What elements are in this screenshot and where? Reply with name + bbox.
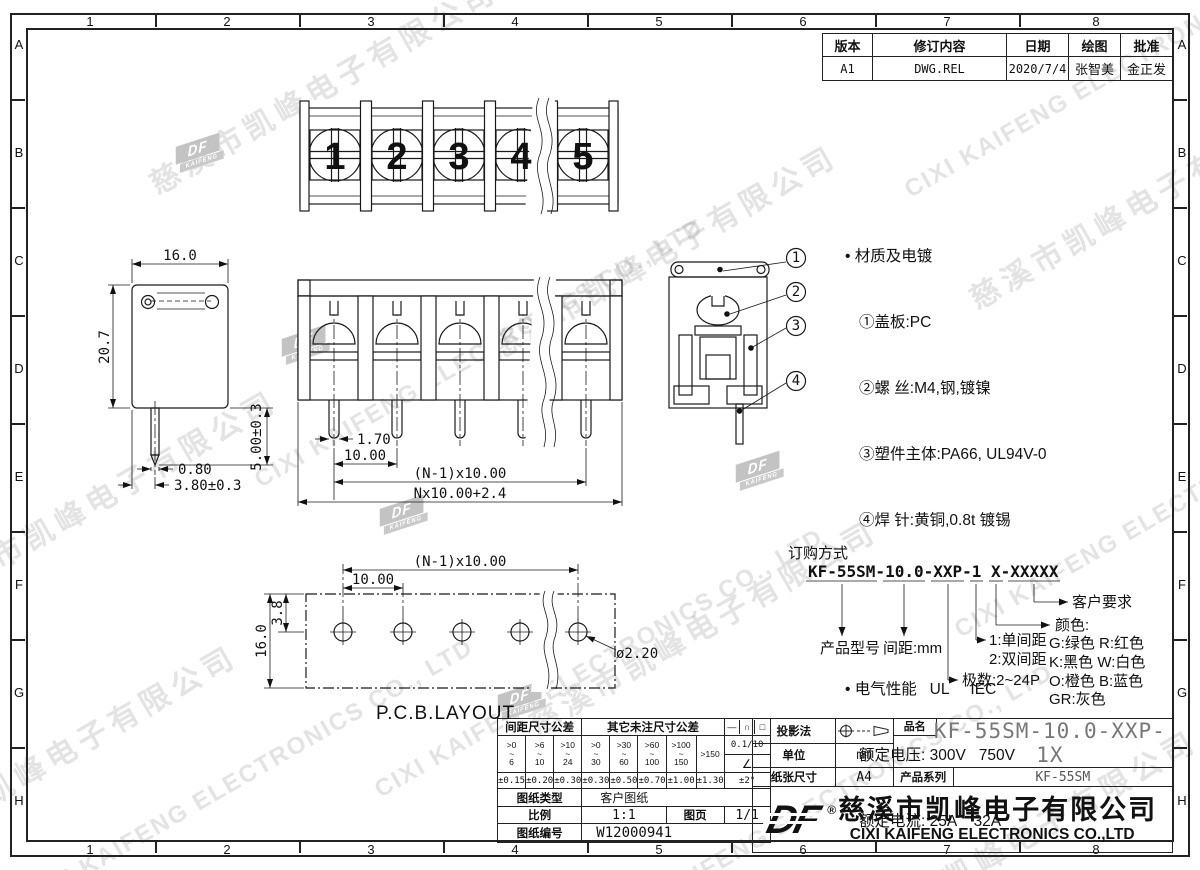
zone-row: B xyxy=(11,145,27,160)
tolerance-value: ±1.30 xyxy=(696,773,724,789)
rev-header: 日期 xyxy=(1007,34,1069,57)
unit-label: 单位 xyxy=(753,743,836,768)
flatness-symbol: — xyxy=(725,720,740,734)
zone-col: 7 xyxy=(939,14,955,29)
unit-value: mm xyxy=(835,743,893,768)
drawing-number-label: 图纸编号 xyxy=(498,824,582,843)
zone-row: A xyxy=(1174,37,1190,52)
page-label: 图页 xyxy=(666,807,724,824)
tolerance-value: ±0.50 xyxy=(610,773,638,789)
title-block: 间距尺寸公差 其它未注尺寸公差 — ∩ □ >0 ~ 6 >6 ~ 10 >10… xyxy=(497,718,1173,840)
rev-header: 版本 xyxy=(823,34,873,57)
spec-line: ③塑件主体:PA66, UL94V-0 xyxy=(845,444,1185,466)
zone-col: 3 xyxy=(363,842,379,857)
range-cell: >100 ~ 150 xyxy=(666,736,696,773)
series-value: KF-55SM xyxy=(953,768,1172,787)
range-cell: >0 ~ 30 xyxy=(582,736,610,773)
tolerance-other-header: 其它未注尺寸公差 xyxy=(582,719,724,736)
rev-approved-by: 金正发 xyxy=(1121,57,1173,81)
range-cell: >150 xyxy=(696,736,724,773)
zone-row: F xyxy=(11,577,27,592)
series-label: 产品系列 xyxy=(893,768,953,787)
tolerance-value: ±0.15 xyxy=(498,773,526,789)
title-info-table: 投影法 品名 KF-55SM-10.0-XXP-1X xyxy=(752,718,1173,853)
zone-col: 3 xyxy=(363,14,379,29)
range-cell: >0 ~ 6 xyxy=(498,736,526,773)
zone-col: 5 xyxy=(651,842,667,857)
registered-mark: ® xyxy=(827,803,838,817)
scale-value: 1:1 xyxy=(582,807,666,824)
revision-table: 版本 修订内容 日期 绘图 批准 A1 DWG.REL 2020/7/4 张智美… xyxy=(822,33,1173,81)
zone-col: 1 xyxy=(82,842,98,857)
tolerance-pitch-header: 间距尺寸公差 xyxy=(498,719,582,736)
range-cell: >6 ~ 10 xyxy=(526,736,554,773)
zone-col: 4 xyxy=(507,14,523,29)
range-cell: >60 ~ 100 xyxy=(638,736,666,773)
drawing-number-value: W12000941 xyxy=(582,824,770,843)
zone-row: E xyxy=(11,469,27,484)
drawing-sheet: 慈溪市凯峰电子有限公司 慈溪市凯峰电子有限公司 CIXI KAIFENG ELE… xyxy=(0,0,1200,870)
zone-col: 1 xyxy=(82,14,98,29)
zone-col: 8 xyxy=(1088,14,1104,29)
company-block: DF ®慈溪市凯峰电子有限公司 CIXI KAIFENG ELECTRONICS… xyxy=(753,795,1172,844)
pcb-layout-label: P.C.B.LAYOUT xyxy=(376,703,515,725)
zone-row: H xyxy=(11,793,27,808)
scale-label: 比例 xyxy=(498,807,582,824)
rev-date: 2020/7/4 xyxy=(1007,57,1069,81)
rev-content: DWG.REL xyxy=(873,57,1007,81)
tolerance-value: ±0.30 xyxy=(554,773,582,789)
product-name-value: KF-55SM-10.0-XXP-1X xyxy=(894,719,1172,767)
range-cell: >30 ~ 60 xyxy=(610,736,638,773)
zone-col: 2 xyxy=(219,14,235,29)
rev-version: A1 xyxy=(823,57,873,81)
section-title: • 材质及电镀 xyxy=(845,246,1185,268)
projection-label: 投影法 xyxy=(753,719,836,744)
zone-row: D xyxy=(11,361,27,376)
range-cell: >10 ~ 24 xyxy=(554,736,582,773)
tolerance-value: ±0.20 xyxy=(526,773,554,789)
tolerance-value: ±1.00 xyxy=(666,773,696,789)
spec-line: ①盖板:PC xyxy=(845,312,1185,334)
rev-header: 批准 xyxy=(1121,34,1173,57)
company-name-cn: ®慈溪市凯峰电子有限公司 xyxy=(827,795,1157,825)
company-name-en: CIXI KAIFENG ELECTRONICS CO.,LTD xyxy=(827,825,1157,844)
drawing-type-label: 图纸类型 xyxy=(498,789,582,807)
material-section: • 材质及电镀 ①盖板:PC ②螺 丝:M4,钢,镀镍 ③塑件主体:PA66, … xyxy=(845,202,1185,576)
company-logo-icon: DF xyxy=(763,799,823,841)
drawing-type-value: 客户图纸 xyxy=(582,789,770,807)
rev-drawn-by: 张智美 xyxy=(1069,57,1121,81)
zone-col: 4 xyxy=(507,842,523,857)
zone-row: G xyxy=(11,685,27,700)
paper-size-label: 纸张尺寸 xyxy=(753,768,836,787)
section-title: • 电气性能 UL IEC xyxy=(845,679,1185,701)
spec-line: ②螺 丝:M4,钢,镀镍 xyxy=(845,378,1185,400)
tolerance-value: ±0.70 xyxy=(638,773,666,789)
rev-header: 绘图 xyxy=(1069,34,1121,57)
zone-col: 5 xyxy=(651,14,667,29)
paper-size-value: A4 xyxy=(835,768,893,787)
zone-col: 6 xyxy=(795,14,811,29)
tolerance-value: ±0.30 xyxy=(582,773,610,789)
tolerance-table: 间距尺寸公差 其它未注尺寸公差 — ∩ □ >0 ~ 6 >6 ~ 10 >10… xyxy=(497,718,771,843)
rev-header: 修订内容 xyxy=(873,34,1007,57)
zone-row: C xyxy=(11,253,27,268)
zone-row: A xyxy=(11,37,27,52)
zone-col: 2 xyxy=(219,842,235,857)
projection-symbol xyxy=(835,719,893,744)
spec-line: ④焊 针:黄铜,0.8t 镀锡 xyxy=(845,510,1185,532)
